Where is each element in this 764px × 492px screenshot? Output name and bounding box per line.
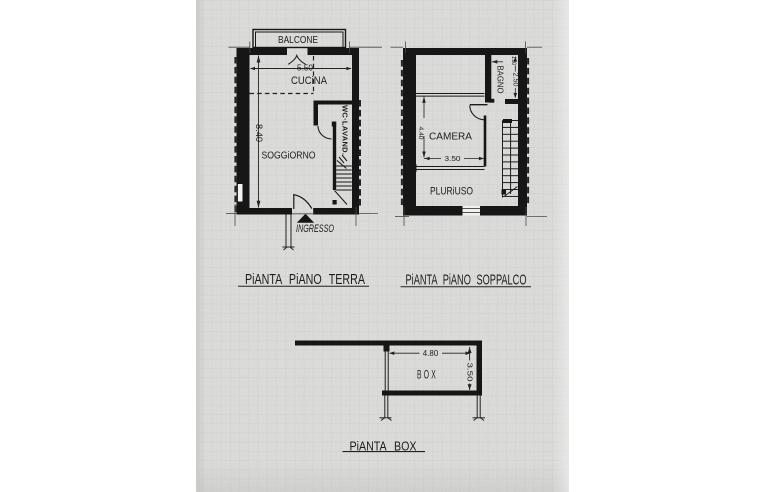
svg-text:BOX: BOX <box>417 368 438 382</box>
svg-text:INGRESSO: INGRESSO <box>296 223 334 235</box>
svg-text:WC·LAVAND.: WC·LAVAND. <box>341 105 350 155</box>
svg-text:PiANTA PiANO TERRA: PiANTA PiANO TERRA <box>245 271 365 288</box>
svg-text:CUCiNA: CUCiNA <box>291 75 328 87</box>
svg-text:BALCONE: BALCONE <box>278 34 318 46</box>
svg-text:3.50: 3.50 <box>466 363 473 382</box>
svg-text:8.40: 8.40 <box>254 124 264 142</box>
svg-text:BAGNO: BAGNO <box>496 66 505 94</box>
svg-text:2.50: 2.50 <box>512 73 519 87</box>
svg-text:4.40: 4.40 <box>417 127 424 140</box>
svg-text:CAMERA: CAMERA <box>429 132 472 143</box>
svg-text:PiANTA PiANO SOPPALCO: PiANTA PiANO SOPPALCO <box>406 272 527 289</box>
svg-text:SOGGiORNO: SOGGiORNO <box>262 151 316 162</box>
svg-text:1.80: 1.80 <box>510 56 517 65</box>
svg-text:PLURiUSO: PLURiUSO <box>430 186 473 198</box>
svg-text:5.50: 5.50 <box>297 64 314 73</box>
svg-text:4.80: 4.80 <box>423 348 439 358</box>
svg-text:3.50: 3.50 <box>445 154 461 163</box>
